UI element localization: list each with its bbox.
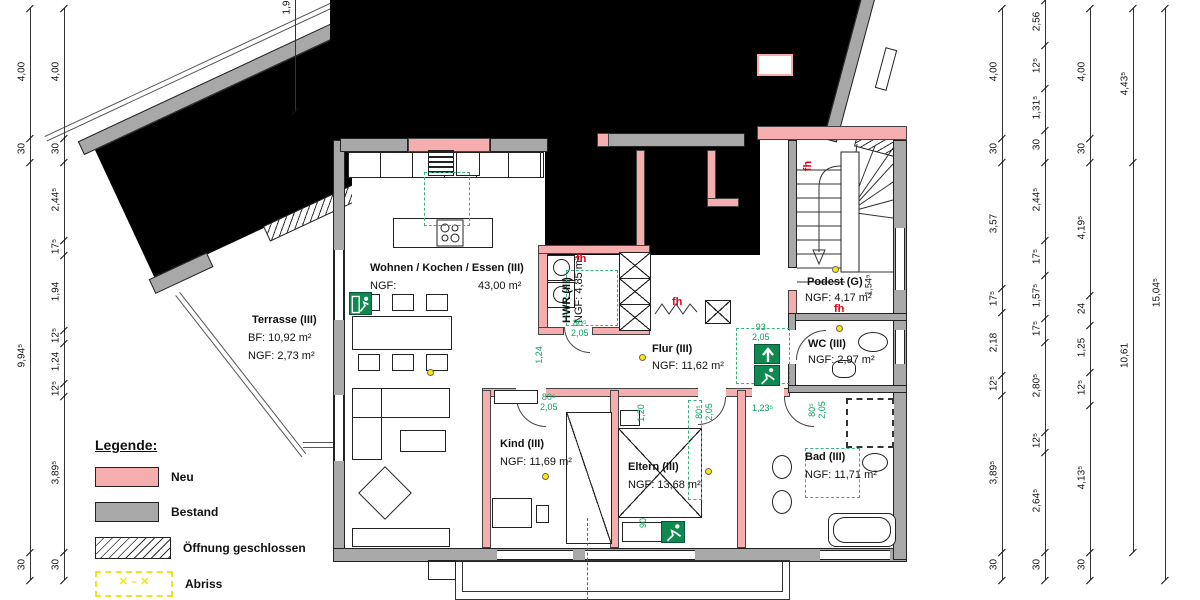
dining-chair-5: [392, 354, 414, 371]
core-beam-cap: [597, 133, 609, 147]
wc-toilet: [858, 332, 888, 352]
legend-swatch-neu: [95, 467, 159, 487]
dimension-chain: [64, 8, 65, 580]
dining-chair-4: [358, 354, 380, 371]
bad-sink-1: [772, 455, 792, 479]
green-dim-eltern-a: 80⁵: [694, 403, 704, 421]
bottom-window-3: [820, 550, 890, 560]
bottom-window-2: [585, 550, 695, 560]
dim-label: 10,61: [1120, 316, 1131, 396]
green-dim-hwr-door: 80⁵ 2,05: [571, 318, 589, 338]
kitchen-demolition-marker: [424, 172, 470, 226]
lamp-dot-wc: [836, 325, 843, 332]
room-label-eltern: Eltern (III): [628, 461, 679, 473]
coffee-table: [400, 430, 446, 452]
kind-shelf: [494, 390, 538, 404]
legend-swatch-abriss: ✕ – ✕: [95, 571, 173, 597]
green-dim-flur-v: 1,24: [534, 346, 544, 364]
floorplan-canvas: Wohnen / Kochen / Essen (III) NGF: 43,00…: [0, 0, 1200, 600]
room-sub2-terrasse: NGF: 2,73 m²: [248, 350, 315, 362]
bad-door-gap: [752, 388, 784, 397]
lamp-dot-flur: [639, 354, 646, 361]
room-sub-wc: NGF: 2,97 m²: [808, 354, 875, 366]
room-label-hwr-group: HWR (III) NGF: 4,85 m²: [561, 233, 601, 323]
room-label-wc: WC (III): [808, 338, 846, 350]
green-dim-wc-door: 93 2,05: [752, 322, 770, 342]
dim-label: 30: [1032, 525, 1043, 600]
core-existing-beam: [608, 133, 745, 147]
lamp-dot-kind: [542, 473, 549, 480]
room-sub-wohnen: NGF:: [370, 280, 396, 292]
core-new-wall-3: [707, 198, 739, 207]
exit-sign-flur-runner: [754, 365, 780, 386]
dim-tick: [1161, 577, 1169, 585]
fh-label-hwr: fh: [576, 253, 586, 265]
dim-label: 30: [1077, 525, 1088, 600]
green-dim-kind-door: 80⁵ 2,05: [540, 392, 558, 412]
room-sub-terrasse: BF: 10,92 m²: [248, 332, 312, 344]
kind-desk: [492, 498, 532, 528]
green-dim-eltern-v: 1,20: [636, 404, 646, 422]
green-dim-bad-b: 2,05: [817, 401, 827, 419]
room-label-hwr: HWR (III): [561, 233, 573, 323]
dim-label: 30: [989, 109, 1000, 189]
exit-sign-eltern: [661, 521, 685, 543]
room-label-terrasse: Terrasse (III): [252, 314, 317, 326]
dim-label: 9,94⁵: [17, 316, 28, 396]
legend-label-oeffnung: Öffnung geschlossen: [183, 541, 306, 555]
stair-top-new-wall: [757, 126, 907, 140]
dim-label: 30: [1077, 109, 1088, 189]
dimension-chain-top-partial: [295, 0, 296, 112]
green-dim-kind-a: 80⁵: [540, 392, 558, 402]
green-dim-hall: 1,23⁵: [752, 403, 773, 413]
hwr-bottom-wall-l: [538, 327, 564, 335]
core-new-wall-1: [636, 150, 645, 255]
room-label-podest: Podest (G): [807, 276, 863, 288]
exit-sign-flur-arrow: [754, 344, 780, 364]
dim-tick: [1129, 549, 1137, 557]
fh-label-stair: fh: [802, 161, 814, 171]
dining-table: [352, 316, 452, 350]
bottom-window-1: [497, 550, 573, 560]
green-dim-eltern-b: 90: [638, 518, 648, 528]
lamp-dot-eltern: [705, 468, 712, 475]
fh-label-flur: fh: [672, 296, 682, 308]
dim-label: 12⁵: [1077, 347, 1088, 427]
green-dim-bad-door: 80⁵ 2,05: [807, 401, 827, 419]
dim-label-top-partial: 1,9: [282, 0, 293, 48]
bad-sink-2: [772, 490, 792, 514]
diagonal-unit: [95, 30, 352, 279]
dimension-chain: [30, 8, 31, 580]
legend-label-bestand: Bestand: [171, 505, 218, 519]
blacked-out-area: [95, 30, 352, 279]
legend-label-neu: Neu: [171, 470, 194, 484]
legend-swatch-bestand: [95, 502, 159, 522]
left-window-2: [334, 395, 344, 461]
dim-label: 30: [989, 525, 1000, 600]
exit-runner-icon: [755, 366, 781, 387]
kind-chair: [536, 505, 549, 523]
room-area-wohnen: 43,00 m²: [478, 280, 521, 292]
exit-runner-icon: [350, 293, 373, 316]
dim-label: 4,00: [989, 32, 1000, 112]
legend-swatch-oeffnung: [95, 537, 171, 559]
green-dim-kind-b: 2,05: [540, 402, 558, 412]
dim-label: 4,43⁵: [1120, 44, 1131, 124]
green-dim-eltern-door: 80⁵ 2,05: [694, 403, 714, 421]
wohnen-kind-wall: [482, 390, 491, 548]
shaft-box-4: [705, 300, 731, 324]
green-dim-wc-a: 93: [752, 322, 770, 332]
right-window-2: [895, 330, 905, 364]
shaft-box-1: [619, 252, 651, 279]
dining-chair-3: [426, 294, 448, 311]
green-dim-eltern-b: 2,05: [704, 403, 714, 421]
blacked-out-top: [330, 0, 795, 140]
legend: Legende: Neu Bestand Öffnung geschlossen…: [95, 437, 315, 600]
dim-label: 15,04⁵: [1152, 253, 1163, 333]
dimension-chain: [1133, 8, 1134, 552]
dim-label: 12⁵: [51, 348, 62, 428]
dim-label: 4,00: [51, 32, 62, 112]
top-wall-existing-left: [340, 138, 408, 152]
green-dim-hwr-a: 80⁵: [571, 318, 589, 328]
kind-bed: [566, 412, 612, 544]
shower-dashed: [846, 398, 894, 448]
dim-label: 4,13⁵: [1077, 437, 1088, 517]
dim-label: 30: [17, 109, 28, 189]
green-dim-bad-a: 80⁵: [807, 401, 817, 419]
room-sub-kind: NGF: 11,69 m²: [500, 456, 572, 468]
bathtub-inner: [833, 517, 891, 543]
core-new-wall-2: [707, 150, 716, 205]
left-window-1: [334, 250, 344, 320]
center-axis-line: [587, 518, 588, 600]
dim-label: 30: [17, 525, 28, 600]
green-dim-wc-b: 2,05: [752, 332, 770, 342]
dim-label: 3,57: [989, 184, 1000, 264]
exit-sign-wohnen: [349, 292, 372, 315]
dim-label: 3,89⁵: [51, 433, 62, 513]
podest-dim: 1,54⁵: [864, 274, 874, 295]
left-existing-wall: [333, 140, 345, 560]
legend-title: Legende:: [95, 437, 315, 453]
room-label-kind: Kind (III): [500, 438, 544, 450]
dim-label: 4,19⁵: [1077, 187, 1088, 267]
top-wall-existing-right: [490, 138, 548, 152]
tv-bench: [352, 528, 450, 547]
room-sub-bad: NGF: 11,71 m²: [805, 469, 877, 481]
lamp-dot-wohnen: [427, 369, 434, 376]
exit-arrow-icon: [755, 345, 781, 365]
room-label-flur: Flur (III): [652, 343, 692, 355]
dim-label: 4,00: [17, 32, 28, 112]
stair-left-wall: [788, 140, 797, 268]
dimension-chain: [1165, 8, 1166, 580]
fh-label-podest: fh: [834, 303, 844, 315]
wc-bad-wall: [788, 385, 907, 393]
eltern-door-gap: [698, 388, 726, 397]
sofa-vertical: [352, 388, 382, 460]
dining-chair-2: [392, 294, 414, 311]
shaft-box-3: [619, 304, 651, 331]
room-label-bad: Bad (III): [805, 451, 845, 463]
dim-label: 3,89⁵: [989, 432, 1000, 512]
podest-wc-wall: [788, 313, 907, 321]
green-dim-hwr-b: 2,05: [571, 328, 589, 338]
lamp-dot-podest: [832, 266, 839, 273]
eltern-bad-wall: [737, 390, 746, 548]
room-sub-eltern: NGF: 13,68 m²: [628, 479, 701, 491]
room-sub-flur: NGF: 11,62 m²: [652, 360, 724, 372]
room-label-wohnen: Wohnen / Kochen / Essen (III): [370, 262, 524, 274]
balcony-inner-line: [462, 560, 783, 592]
dim-label: 4,00: [1077, 32, 1088, 112]
legend-label-abriss: Abriss: [185, 577, 222, 591]
dimension-chain: [1002, 8, 1003, 580]
right-window-1: [895, 228, 905, 290]
exit-runner-icon: [662, 522, 686, 544]
shaft-box-2: [619, 278, 651, 305]
room-sub-hwr: NGF: 4,85 m²: [573, 233, 585, 323]
top-notch: [757, 54, 793, 76]
dim-label: 30: [51, 525, 62, 600]
balcony-step: [428, 560, 456, 580]
dim-label: 12⁵: [989, 344, 1000, 424]
